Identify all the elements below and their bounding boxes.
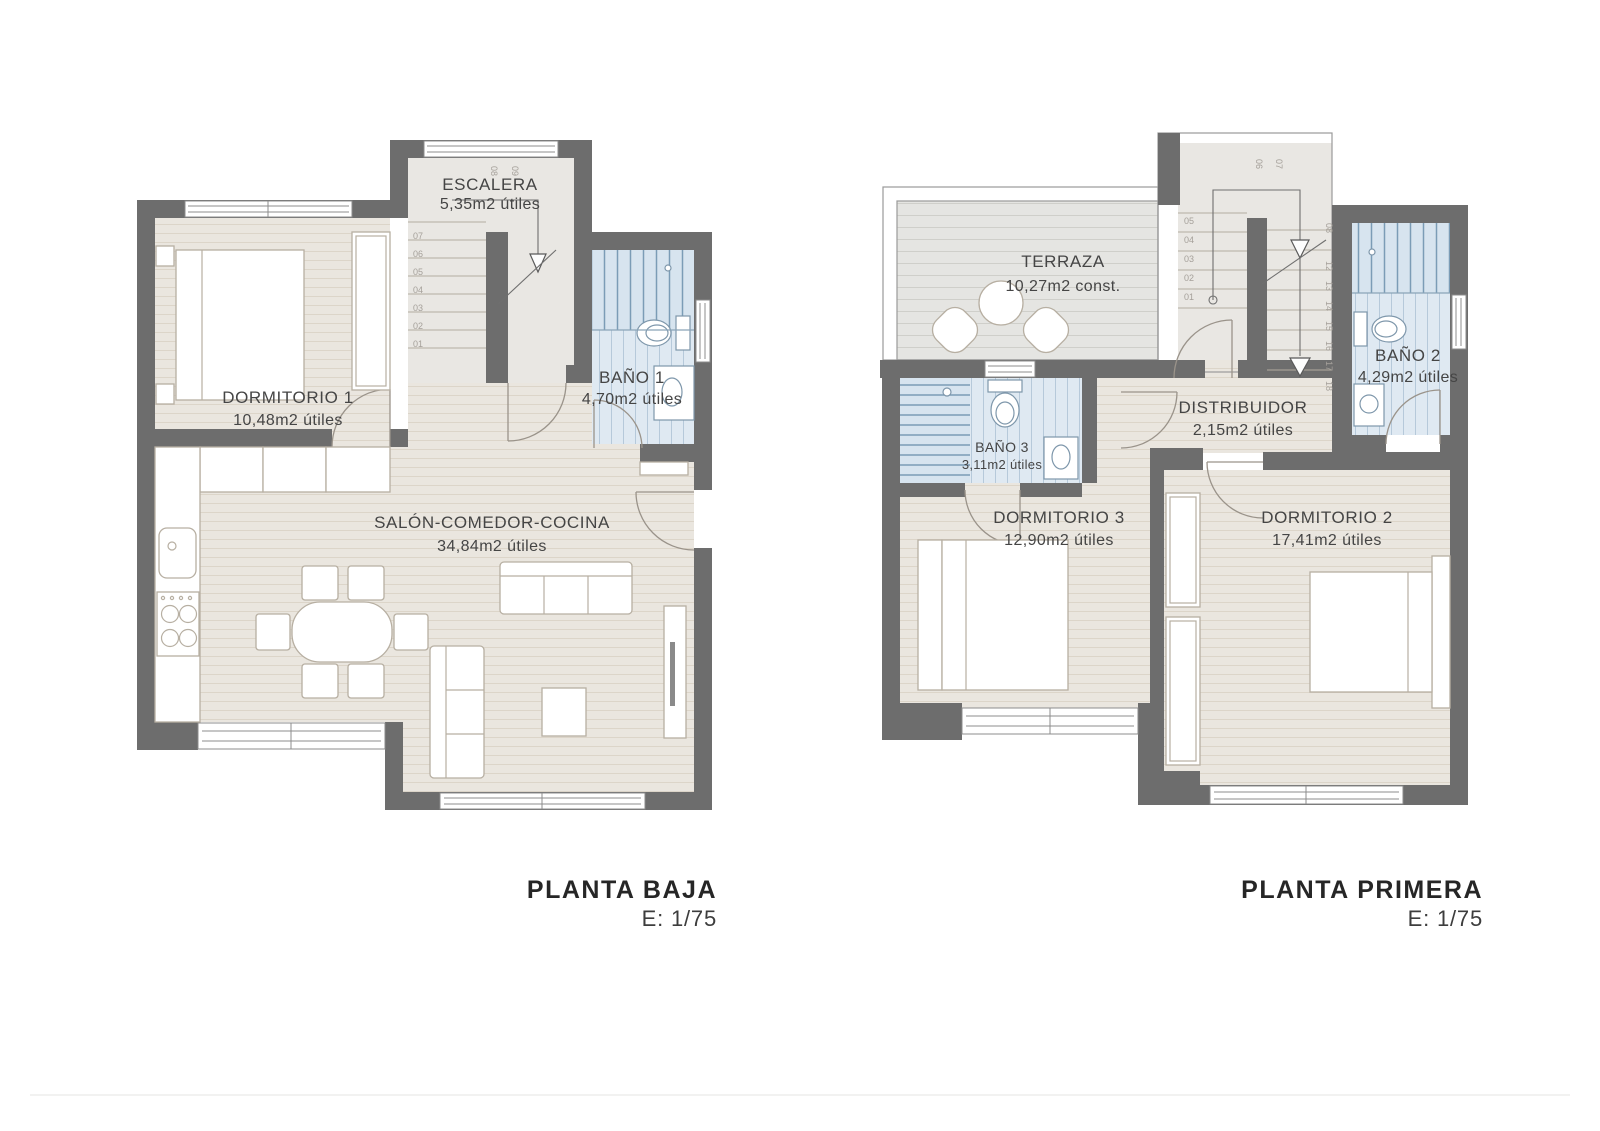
wardrobe-dormitorio2-upper <box>1166 493 1200 607</box>
entry-niche <box>640 462 688 475</box>
stair-number: 07 <box>413 231 423 241</box>
tv-unit <box>664 606 686 738</box>
stair-number: 01 <box>413 339 423 349</box>
stair-number: 03 <box>413 303 423 313</box>
scale-planta-baja: E: 1/75 <box>642 906 717 931</box>
stair-number: 04 <box>1184 235 1194 245</box>
cooktop <box>157 592 199 656</box>
window-dormitorio1 <box>185 201 352 217</box>
room-area-distribuidor: 2,15m2 útiles <box>1193 422 1293 439</box>
room-label-terraza: TERRAZA <box>1021 252 1105 271</box>
sink-bano3 <box>1044 437 1078 479</box>
room-area-dormitorio2: 17,41m2 útiles <box>1272 532 1382 549</box>
room-area-dormitorio3: 12,90m2 útiles <box>1004 532 1114 549</box>
sofa <box>500 562 632 614</box>
plan-planta-primera: 05 04 03 02 01 06 07 08 12 13 14 15 16 1… <box>880 133 1468 805</box>
room-label-bano1: BAÑO 1 <box>599 368 665 387</box>
floorplan-sheet: 07 06 05 04 03 02 01 08 09 <box>0 0 1600 1131</box>
plan-titles: PLANTA BAJA E: 1/75 PLANTA PRIMERA E: 1/… <box>527 876 1483 931</box>
bano2-shower-floor <box>1352 223 1450 293</box>
plan-planta-baja: 07 06 05 04 03 02 01 08 09 <box>137 140 712 810</box>
room-area-bano3: 3,11m2 útiles <box>962 457 1042 472</box>
window-salon-left <box>198 723 385 749</box>
stair-number: 05 <box>1184 216 1194 226</box>
bed-dormitorio1 <box>156 246 304 404</box>
stair-number: 12 <box>1324 261 1334 271</box>
sofa-chaise <box>430 646 484 778</box>
bed-dormitorio3 <box>918 540 1068 690</box>
stair-number: 06 <box>413 249 423 259</box>
window-bano3 <box>985 361 1035 377</box>
wardrobe-dormitorio2-lower <box>1166 617 1200 765</box>
bano3-shower-floor <box>900 378 970 483</box>
stair-number: 07 <box>1274 159 1284 169</box>
wardrobe-dormitorio1 <box>352 232 390 390</box>
stair-number: 15 <box>1324 321 1334 331</box>
room-label-distribuidor: DISTRIBUIDOR <box>1178 398 1307 417</box>
window-escalera <box>424 141 558 157</box>
window-bano1 <box>696 300 710 362</box>
shower-drain-bano1 <box>665 265 671 271</box>
stair-number: 03 <box>1184 254 1194 264</box>
title-planta-primera: PLANTA PRIMERA <box>1241 876 1483 904</box>
room-area-escalera: 5,35m2 útiles <box>440 196 540 213</box>
room-label-salon: SALÓN-COMEDOR-COCINA <box>374 513 610 532</box>
room-area-bano2: 4,29m2 útiles <box>1358 369 1458 386</box>
window-bano2 <box>1452 295 1466 349</box>
stair-number: 13 <box>1324 281 1334 291</box>
room-label-dormitorio1: DORMITORIO 1 <box>222 388 354 407</box>
room-label-escalera: ESCALERA <box>442 175 538 194</box>
window-salon-bottom <box>440 793 645 809</box>
kitchen-sink <box>159 528 196 578</box>
stair-number: 02 <box>1184 273 1194 283</box>
stair-number: 06 <box>1254 159 1264 169</box>
stair-number: 14 <box>1324 301 1334 311</box>
room-area-salon: 34,84m2 útiles <box>437 538 547 555</box>
window-dormitorio3 <box>962 708 1138 734</box>
window-dormitorio2 <box>1210 786 1403 804</box>
room-area-bano1: 4,70m2 útiles <box>582 391 682 408</box>
stair-number: 04 <box>413 285 423 295</box>
toilet-bano3 <box>988 380 1022 427</box>
room-label-bano2: BAÑO 2 <box>1375 346 1441 365</box>
stair-number: 16 <box>1324 341 1334 351</box>
sheet-bottom-edge <box>30 1094 1570 1096</box>
room-area-terraza: 10,27m2 const. <box>1006 278 1121 295</box>
room-area-dormitorio1: 10,48m2 útiles <box>233 412 343 429</box>
stair-number: 08 <box>1324 223 1334 233</box>
room-label-dormitorio3: DORMITORIO 3 <box>993 508 1125 527</box>
floorplan-drawing: 07 06 05 04 03 02 01 08 09 <box>0 0 1600 1131</box>
stair-number: 05 <box>413 267 423 277</box>
stair-number: 01 <box>1184 292 1194 302</box>
stair-number: 02 <box>413 321 423 331</box>
room-label-dormitorio2: DORMITORIO 2 <box>1261 508 1393 527</box>
stair-number: 17 <box>1324 361 1334 371</box>
shower-drain-bano2 <box>1369 249 1375 255</box>
room-label-bano3: BAÑO 3 <box>975 439 1029 455</box>
coffee-table <box>542 688 586 736</box>
sink-bano2 <box>1354 384 1384 426</box>
shower-head-bano3 <box>943 388 951 396</box>
distribuidor-passage-floor <box>1097 448 1150 483</box>
title-planta-baja: PLANTA BAJA <box>527 876 717 904</box>
stair-number: 18 <box>1324 381 1334 391</box>
bed-dormitorio2 <box>1310 556 1450 708</box>
scale-planta-primera: E: 1/75 <box>1408 906 1483 931</box>
